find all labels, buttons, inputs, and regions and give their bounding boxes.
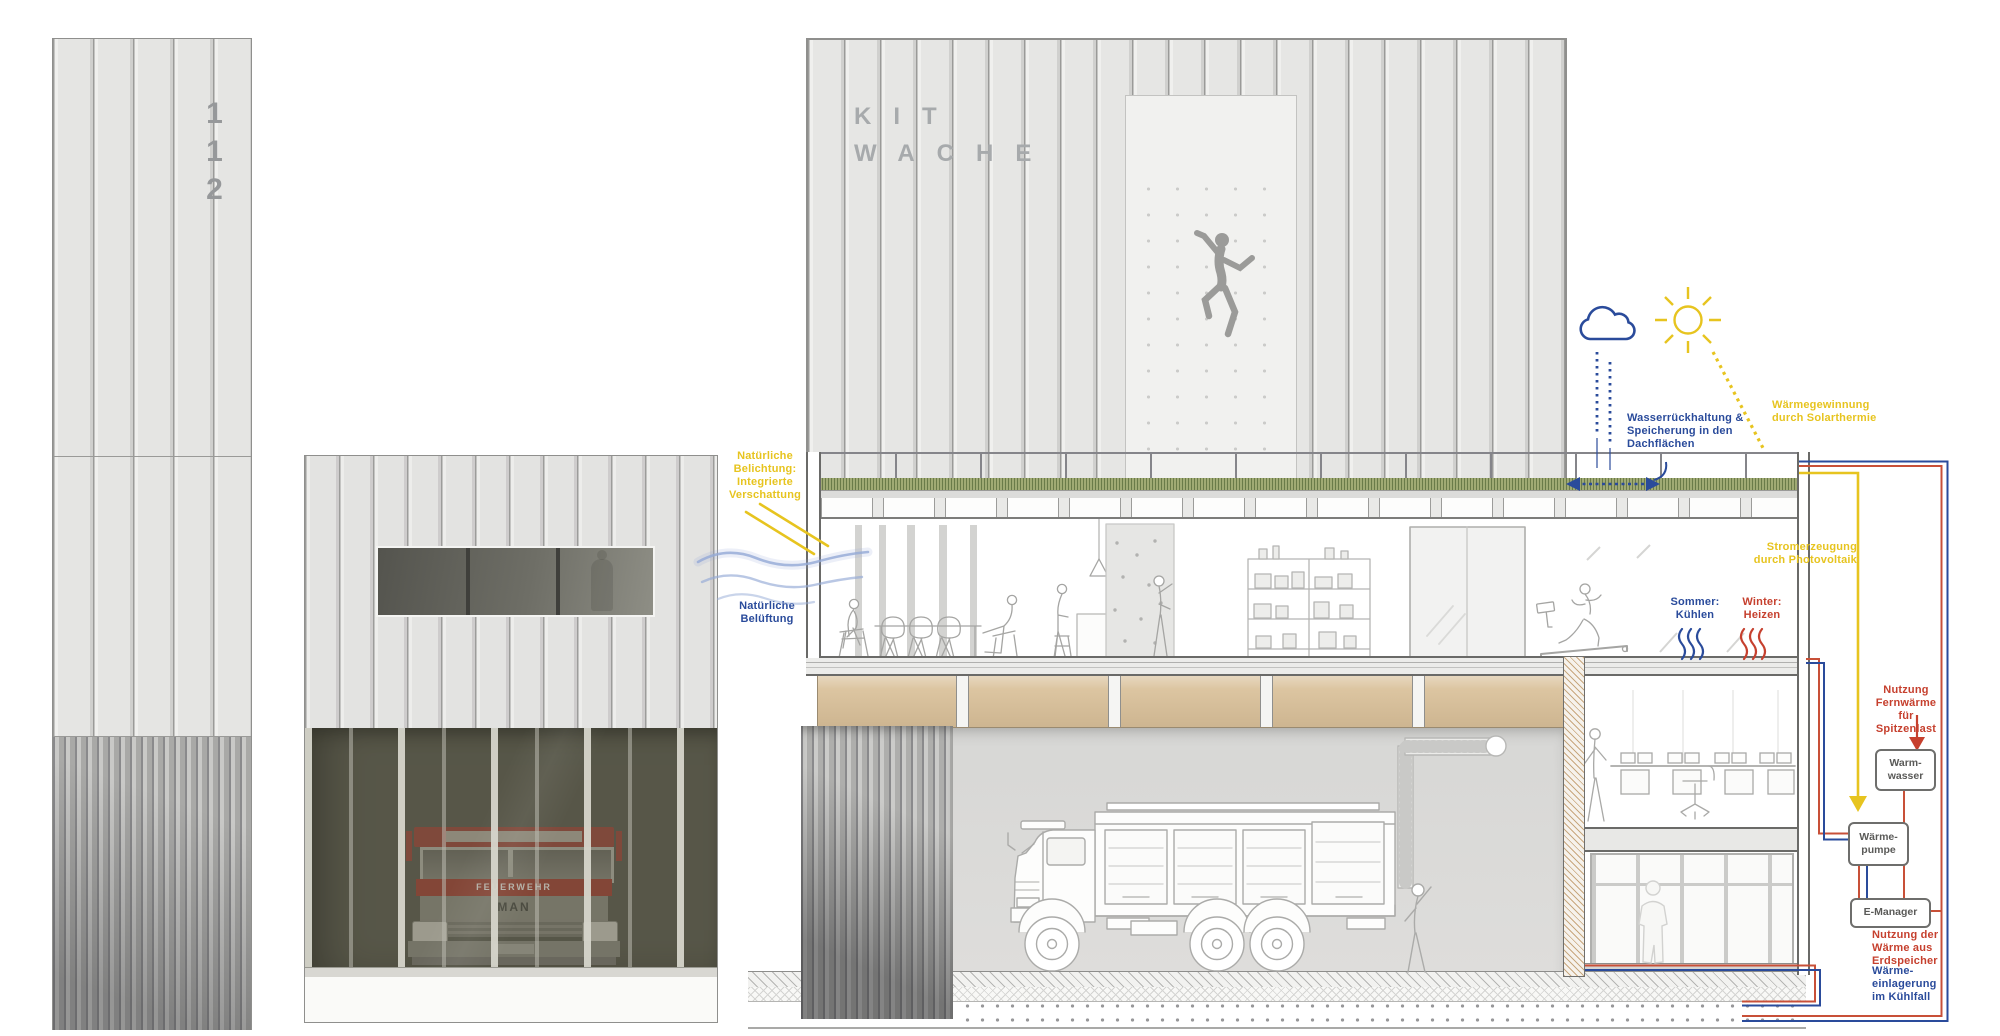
person-on-stool <box>1054 584 1071 658</box>
roof-joist-band <box>810 498 1800 519</box>
tower-facade-slats <box>53 736 251 1030</box>
exhaust-duct <box>1398 736 1506 888</box>
label-photovoltaics: Stromerzeugung durch Photovoltaik <box>1745 541 1857 567</box>
louver-screen <box>801 726 953 1019</box>
backwall-glazing <box>1633 690 1778 763</box>
standing-person-control <box>1585 729 1606 821</box>
section-left-wall <box>806 452 821 658</box>
garage-door-major-mullions <box>305 728 717 967</box>
window-mullion <box>466 548 470 615</box>
control-room-scene <box>1563 678 1805 827</box>
dispatcher-desks <box>1611 753 1795 794</box>
node-e-manager: E-Manager <box>1850 898 1931 928</box>
node-heat-pump: Wärme- pumpe <box>1848 822 1909 866</box>
glazed-partition <box>1410 527 1525 658</box>
apparatus-bay-scene <box>955 700 1565 973</box>
cloud-icon <box>1581 307 1635 339</box>
firestation-front-elevation: FEUERWEHR MAN <box>304 455 718 1023</box>
ground-bottom-line <box>748 1027 1806 1029</box>
tower-slat-shadow <box>53 737 251 1030</box>
hall-name-lettering: KIT WACHE <box>854 98 1053 172</box>
person-silhouette-window <box>591 559 613 611</box>
annex-left-wall <box>1563 656 1585 977</box>
foundation-pile-row <box>958 1015 1803 1023</box>
hose-tower-elevation: 112 <box>52 38 252 1030</box>
equipment-shelf <box>1248 546 1370 658</box>
foundation-pile-row <box>958 1001 1803 1009</box>
label-geothermal-use: Nutzung der Wärme aus Erdspeicher <box>1872 929 1944 968</box>
building-base <box>305 977 717 1022</box>
firefighter-figure <box>1405 884 1431 972</box>
dining-table <box>875 626 981 658</box>
annex-right-wall <box>1797 452 1810 975</box>
node-hot-water: Warm- wasser <box>1875 749 1936 791</box>
intermediate-floor-slab <box>806 656 1806 676</box>
louver-shadow <box>801 726 953 1019</box>
annex-floor-slab <box>1563 827 1806 852</box>
label-water-retention: Wasserrückhaltung & Speicherung in den D… <box>1627 412 1752 451</box>
tower-number-112: 112 <box>199 97 229 211</box>
front-window-band <box>376 546 655 617</box>
tower-facade-middle <box>53 456 251 737</box>
label-district-heating: Nutzung Fernwärme für Spitzenlast <box>1870 684 1942 736</box>
annex-glazing <box>1590 853 1794 969</box>
seated-person-reading <box>839 599 868 658</box>
seated-person-leaning <box>983 595 1017 659</box>
label-cooling-storage: Wärme- einlagerung im Kühlfall <box>1872 965 1944 1004</box>
fire-truck-side <box>1008 803 1395 971</box>
label-summer-cooling: Sommer: Kühlen <box>1666 596 1724 622</box>
sun-icon <box>1655 287 1721 353</box>
climber-figure <box>1180 212 1272 358</box>
treadmill-runner <box>1537 584 1628 658</box>
label-winter-heating: Winter: Heizen <box>1732 596 1792 622</box>
architectural-energy-diagram: 112 FEUERWEHR MAN <box>0 0 2000 1036</box>
annex-ground-room <box>1583 848 1797 975</box>
ghost-person-glazing <box>1630 876 1676 966</box>
pendant-lamp <box>1090 518 1108 576</box>
garage-glass-doors: FEUERWEHR MAN <box>305 728 717 967</box>
label-solar-thermal: Wärmegewinnung durch Solarthermie <box>1772 399 1887 425</box>
window-mullion <box>556 548 560 615</box>
roof-railing <box>810 452 1800 480</box>
upper-floor-scene <box>815 515 1805 660</box>
